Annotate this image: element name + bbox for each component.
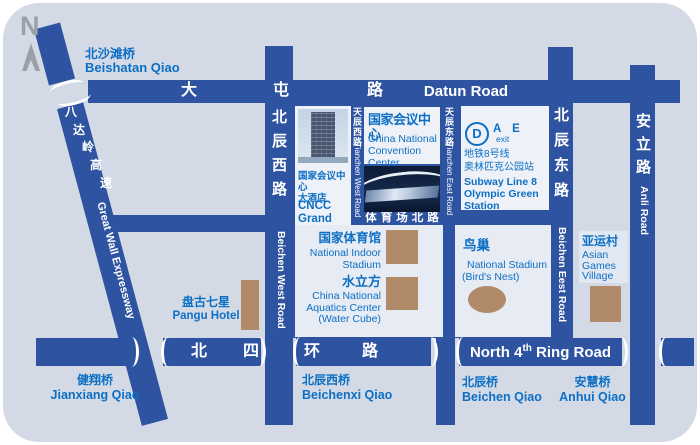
cncc-hotel-photo bbox=[298, 109, 348, 163]
water-cube-en3: (Water Cube) bbox=[297, 314, 381, 326]
hotel-tower-art bbox=[311, 112, 335, 158]
subway-line-en: Subway Line 8 bbox=[464, 176, 537, 188]
road-label-beichen-east-zh: 北辰东路 bbox=[553, 107, 568, 207]
cncc-en1: China National bbox=[368, 133, 440, 145]
expwy-zh: 速 bbox=[100, 177, 112, 189]
beichen-en: Beichen Qiao bbox=[462, 390, 542, 404]
road-label-ring-zh: 环 bbox=[304, 344, 320, 360]
bridge-label-beishatan: 北沙滩桥 Beishatan Qiao bbox=[85, 47, 180, 76]
expwy-zh: 八 bbox=[65, 106, 77, 118]
indoor-stadium-zh: 国家体育馆 bbox=[305, 231, 381, 245]
anhui-zh: 安慧桥 bbox=[555, 376, 630, 390]
indoor-stadium-en2: Stadium bbox=[305, 259, 381, 271]
cncc-card: 国家会议中心 China National Convention Center bbox=[364, 107, 440, 164]
indoor-stadium-en1: National Indoor bbox=[305, 247, 381, 259]
anhui-en: Anhui Qiao bbox=[555, 390, 630, 404]
bridge-mark bbox=[161, 337, 176, 367]
road-expressway-upper bbox=[34, 22, 75, 85]
hotel-ground-art bbox=[298, 157, 348, 163]
pangu-en: Pangu Hotel bbox=[168, 310, 244, 323]
indoor-stadium-en: National Indoor Stadium bbox=[305, 247, 381, 271]
subway-station-en1: Olympic Green bbox=[464, 188, 539, 200]
road-label-ring-zh: 北 bbox=[191, 344, 207, 360]
indoor-stadium-footprint bbox=[386, 230, 418, 264]
map-background: N 大 屯 路 Datun Road 北 四 环 路 North 4th Rin… bbox=[3, 3, 697, 442]
beichenxi-en: Beichenxi Qiao bbox=[302, 388, 392, 402]
road-label-datun-zh: 屯 bbox=[273, 83, 289, 99]
bridge-label-anhui: 安慧桥 Anhui Qiao bbox=[555, 376, 630, 404]
cncc-photo bbox=[364, 166, 440, 212]
asian-games-card: 亚运村 Asian Games Village bbox=[579, 231, 628, 283]
compass-letter: N bbox=[20, 11, 40, 42]
asian-games-footprint bbox=[590, 286, 621, 322]
beichen-zh: 北辰桥 bbox=[462, 376, 542, 390]
road-beichen-south bbox=[436, 338, 455, 425]
jianxiang-zh: 健翔桥 bbox=[49, 374, 141, 388]
birds-nest-zh: 鸟巢 bbox=[463, 238, 490, 254]
ring-en-post: Ring Road bbox=[532, 344, 611, 361]
water-cube-en1: China National bbox=[297, 291, 381, 303]
asian-games-en: Asian Games Village bbox=[582, 250, 616, 282]
road-label-ring-zh: 四 bbox=[243, 344, 259, 360]
road-label-stadium-north: 体育场北路 bbox=[359, 213, 449, 225]
water-cube-footprint bbox=[386, 277, 418, 310]
road-label-datun-en: Datun Road bbox=[411, 84, 521, 99]
birds-nest-en1: National Stadium bbox=[467, 259, 547, 271]
asian-games-zh: 亚运村 bbox=[582, 235, 618, 249]
beishatan-en: Beishatan Qiao bbox=[85, 61, 180, 76]
subway-line-zh: 地铁8号线 bbox=[464, 149, 510, 161]
cncc-en: China National Convention Center bbox=[368, 133, 440, 169]
bridge-label-beichen: 北辰桥 Beichen Qiao bbox=[462, 376, 542, 404]
road-label-anli-en: Anli Road bbox=[639, 186, 650, 235]
road-label-beichen-east-en: Beichen Eest Road bbox=[557, 227, 568, 322]
road-connector bbox=[103, 215, 265, 232]
bridge-label-beichenxi: 北辰西桥 Beichenxi Qiao bbox=[302, 374, 392, 402]
road-label-tianchen-west-zh: 天辰西路 bbox=[352, 107, 361, 147]
road-label-beichen-west-en: Beichen West Road bbox=[276, 231, 287, 329]
pangu-zh: 盘古七星 bbox=[168, 296, 244, 310]
expwy-zh: 高 bbox=[90, 159, 102, 171]
birds-nest-footprint bbox=[468, 286, 506, 313]
beijing-subway-logo-icon: D bbox=[465, 122, 489, 146]
subway-exit-word: exit bbox=[496, 135, 509, 145]
bridge-label-jianxiang: 健翔桥 Jianxiang Qiao bbox=[49, 374, 141, 402]
subway-station-zh: 奥林匹克公园站 bbox=[464, 162, 534, 174]
pangu-label: 盘古七星 Pangu Hotel bbox=[168, 296, 244, 323]
road-datun bbox=[88, 80, 680, 103]
cncc-hotel-card: 国家会议中心 大酒店 CNCC Grand Hotel bbox=[295, 106, 351, 235]
birds-nest-en2: (Bird's Nest) bbox=[462, 271, 519, 283]
cncc-hotel-en1: CNCC bbox=[298, 200, 351, 213]
water-cube-en: China National Aquatics Center (Water Cu… bbox=[297, 291, 381, 326]
bridge-mark bbox=[423, 337, 438, 367]
road-label-ring-en: North 4th Ring Road bbox=[463, 344, 618, 360]
road-ring-seg1 bbox=[36, 338, 132, 366]
expwy-zh: 达 bbox=[73, 124, 85, 136]
north-arrow-notch bbox=[26, 60, 36, 72]
road-label-beichen-west-zh: 北辰西路 bbox=[271, 109, 286, 205]
water-cube-zh: 水立方 bbox=[305, 275, 381, 290]
ring-en-sup: th bbox=[522, 343, 531, 354]
ring-en-pre: North 4 bbox=[470, 344, 523, 361]
road-label-ring-zh: 路 bbox=[362, 344, 378, 360]
road-label-tianchen-east-en: Tianchen East Road bbox=[445, 143, 453, 215]
beichenxi-zh: 北辰西桥 bbox=[302, 374, 392, 388]
bridge-mark bbox=[659, 337, 674, 367]
pangu-footprint bbox=[241, 280, 259, 330]
bridge-mark bbox=[124, 337, 139, 367]
road-label-tianchen-west-en: Tianchen West Road bbox=[353, 143, 361, 217]
beishatan-zh: 北沙滩桥 bbox=[85, 47, 180, 61]
cncc-area-map: N 大 屯 路 Datun Road 北 四 环 路 North 4th Rin… bbox=[0, 0, 700, 445]
road-label-datun-zh: 大 bbox=[181, 83, 197, 99]
cncc-hotel-zh1: 国家会议中心 bbox=[298, 172, 351, 194]
asian-games-en3: Village bbox=[582, 271, 616, 282]
subway-card: D A E exit 地铁8号线 奥林匹克公园站 Subway Line 8 O… bbox=[461, 106, 549, 210]
birds-nest-card: 鸟巢 National Stadium (Bird's Nest) bbox=[455, 225, 551, 337]
stadiums-card: 国家体育馆 National Indoor Stadium 水立方 China … bbox=[295, 225, 443, 337]
road-label-tianchen-east-zh: 天辰东路 bbox=[444, 107, 453, 147]
jianxiang-en: Jianxiang Qiao bbox=[49, 388, 141, 402]
subway-station-en2: Station bbox=[464, 200, 500, 212]
road-label-anli-zh: 安立路 bbox=[635, 113, 650, 182]
expwy-zh: 岭 bbox=[82, 141, 94, 153]
road-label-datun-zh: 路 bbox=[367, 83, 383, 99]
